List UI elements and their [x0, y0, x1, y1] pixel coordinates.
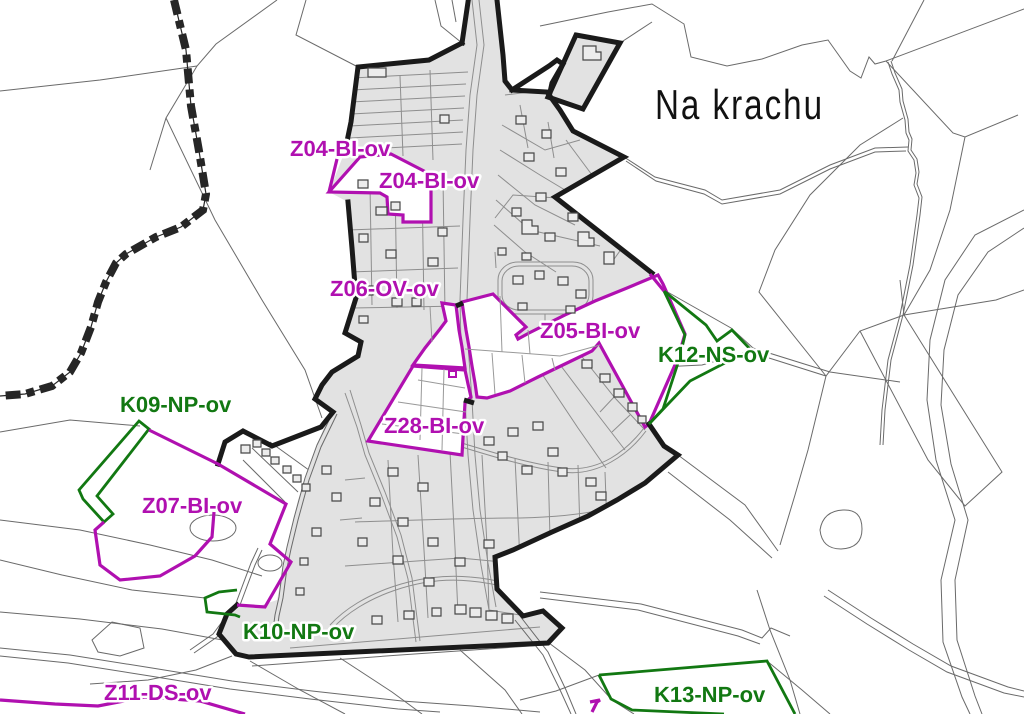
svg-text:Z04-BI-ov: Z04-BI-ov: [290, 136, 391, 161]
svg-text:Na krachu: Na krachu: [655, 81, 824, 128]
svg-text:Z04-BI-ov: Z04-BI-ov: [379, 168, 480, 193]
svg-text:K12-NS-ov: K12-NS-ov: [658, 342, 770, 367]
svg-text:Z05-BI-ov: Z05-BI-ov: [540, 318, 641, 343]
svg-text:K13-NP-ov: K13-NP-ov: [654, 682, 766, 707]
svg-text:Z07-BI-ov: Z07-BI-ov: [142, 493, 243, 518]
svg-text:Z11-DS-ov: Z11-DS-ov: [104, 680, 212, 705]
svg-text:Z06-OV-ov: Z06-OV-ov: [330, 276, 440, 301]
svg-text:K09-NP-ov: K09-NP-ov: [120, 392, 232, 417]
svg-text:Z28-BI-ov: Z28-BI-ov: [384, 413, 485, 438]
svg-text:K10-NP-ov: K10-NP-ov: [243, 619, 355, 644]
